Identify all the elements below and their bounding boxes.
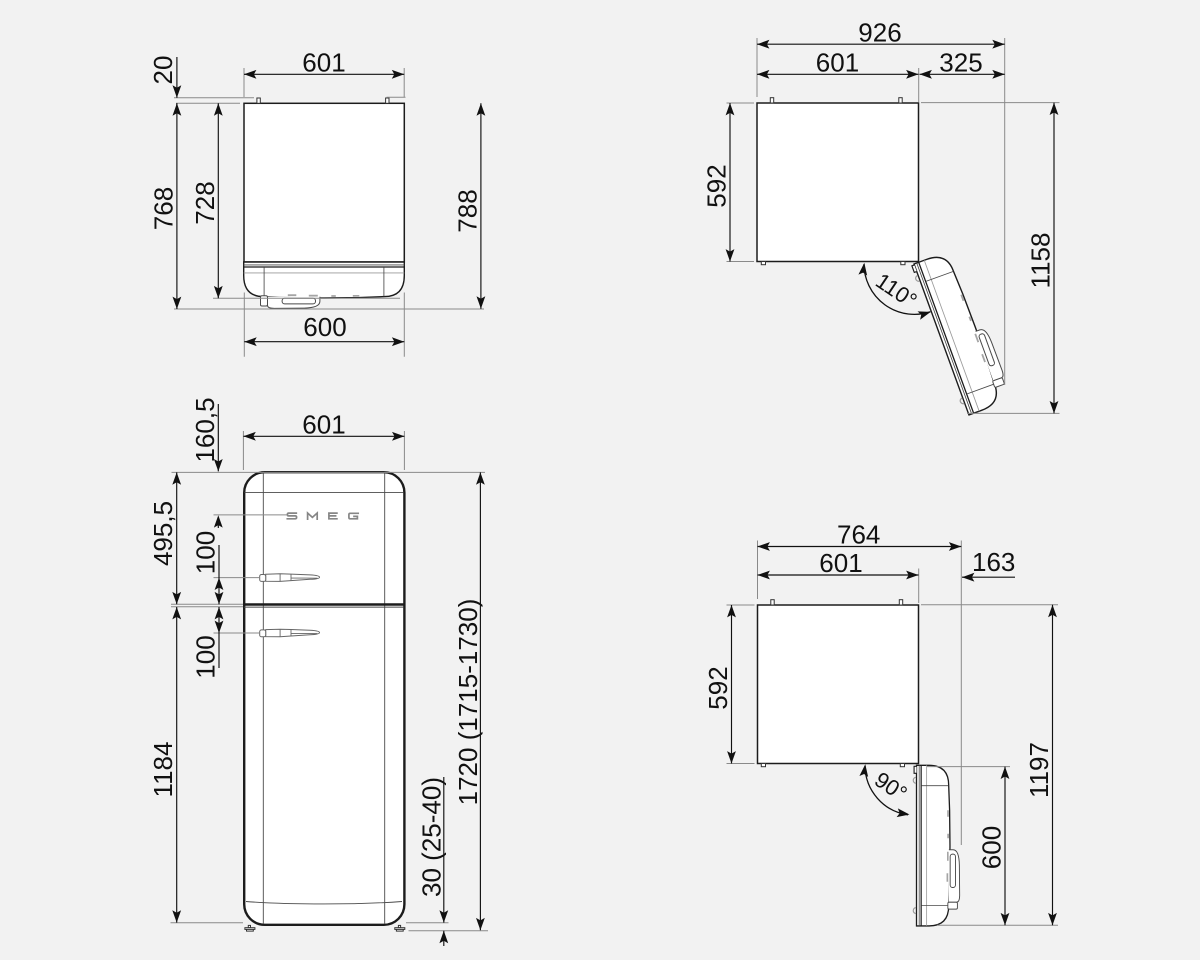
svg-text:764: 764 (837, 520, 880, 550)
svg-text:592: 592 (702, 164, 732, 207)
svg-text:495,5: 495,5 (148, 501, 178, 566)
svg-text:1158: 1158 (1026, 233, 1056, 289)
svg-text:1720 (1715-1730): 1720 (1715-1730) (453, 599, 483, 806)
svg-text:601: 601 (816, 48, 859, 78)
svg-text:768: 768 (148, 187, 178, 230)
svg-text:160,5: 160,5 (190, 397, 220, 462)
svg-text:1184: 1184 (148, 742, 178, 798)
svg-text:100: 100 (191, 531, 221, 574)
svg-text:926: 926 (858, 17, 901, 47)
svg-text:601: 601 (302, 48, 345, 78)
svg-text:788: 788 (452, 189, 482, 232)
svg-text:728: 728 (190, 181, 220, 224)
svg-text:601: 601 (819, 548, 862, 578)
svg-text:100: 100 (191, 635, 221, 678)
svg-text:592: 592 (703, 666, 733, 709)
svg-text:20: 20 (148, 56, 178, 85)
svg-text:601: 601 (302, 409, 345, 439)
svg-text:163: 163 (972, 547, 1015, 577)
svg-text:600: 600 (303, 312, 346, 342)
svg-text:1197: 1197 (1024, 742, 1054, 798)
svg-text:30 (25-40): 30 (25-40) (416, 777, 446, 897)
svg-text:325: 325 (939, 48, 982, 78)
svg-text:600: 600 (977, 826, 1007, 869)
